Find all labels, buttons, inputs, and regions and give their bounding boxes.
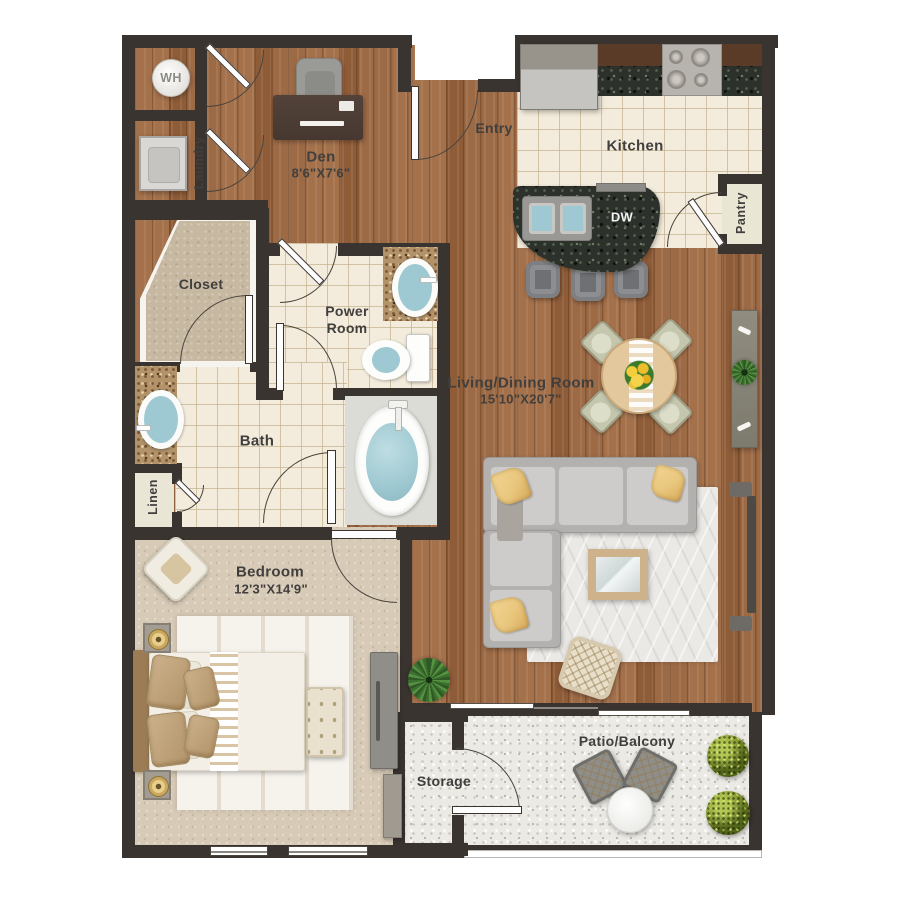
wall-entry-stub-left: [398, 35, 411, 92]
wall-closet-top: [133, 200, 268, 220]
refrigerator: [520, 44, 598, 110]
stove: [662, 44, 722, 96]
bed-headboard: [133, 650, 149, 772]
patio-label: Patio/Balcony: [579, 733, 675, 749]
bath-label: Bath: [240, 433, 275, 450]
bedroom-cabinet: [383, 774, 402, 838]
bed-blanket: [238, 652, 305, 771]
living-dining-label: Living/Dining Room: [447, 375, 594, 392]
sliding-door-track: [534, 707, 598, 709]
bed-folded-quilt: [210, 652, 238, 771]
bedroom-door[interactable]: [331, 530, 397, 539]
power-room-faucet: [420, 277, 437, 283]
patio-railing: [464, 850, 762, 858]
bedroom-window-left: [210, 846, 268, 856]
stove-burner: [667, 70, 686, 89]
den-desk-paper: [339, 101, 354, 111]
island-sink-unit: [522, 196, 592, 241]
wall-wh-laundry-divider: [133, 110, 197, 121]
bathtub-faucet-stem: [395, 407, 402, 431]
living-dining-dims: 15'10"X20'7": [480, 392, 561, 407]
table-flowers: [622, 360, 655, 393]
dishwasher-label: DW: [611, 210, 633, 225]
bedroom-chair-cushion: [159, 552, 193, 586]
entry-label: Entry: [475, 120, 512, 136]
power-room-label: Power Room: [318, 303, 376, 337]
toilet-water: [372, 347, 400, 373]
tv-bracket: [729, 616, 752, 631]
pantry-label: Pantry: [734, 192, 748, 234]
sink-basin-right: [560, 203, 586, 234]
wall-right: [762, 35, 775, 715]
closet-label: Closet: [179, 276, 224, 292]
patio-table: [607, 787, 653, 833]
nightstand-lamp: [148, 629, 169, 650]
bedroom-dresser: [370, 652, 398, 769]
bedroom-label: Bedroom: [236, 564, 304, 581]
island-tray: [596, 183, 646, 192]
washer-drum: [148, 147, 180, 183]
bath-sink: [138, 390, 184, 449]
bedroom-window-right: [288, 846, 368, 856]
patio-shrub: [707, 735, 749, 777]
power-room-sink: [392, 258, 438, 317]
wh-label: WH: [160, 71, 181, 85]
coffee-table: [588, 549, 648, 600]
sliding-door-pane-left[interactable]: [450, 703, 534, 709]
tv-screen: [747, 496, 756, 613]
sink-basin-left: [529, 203, 555, 234]
living-room-plant: [408, 658, 450, 702]
console-plant: [732, 360, 757, 385]
den-desk-keyboard: [300, 121, 344, 126]
wall-top-left: [122, 35, 412, 48]
stove-burner: [691, 48, 710, 67]
bed-bench: [306, 687, 344, 757]
kitchen-label: Kitchen: [606, 138, 663, 155]
closet-door[interactable]: [245, 295, 253, 364]
dresser-handle: [376, 681, 380, 741]
wall-storage-bottom: [393, 843, 468, 856]
wall-power-room-top-left: [262, 243, 280, 256]
laundry-label: Laundry: [192, 137, 206, 190]
patio-shrub: [706, 791, 750, 835]
bedroom-dims: 12'3"X14'9": [234, 582, 308, 597]
den-label: Den: [306, 149, 335, 166]
nightstand-lamp: [148, 776, 169, 797]
bath-door[interactable]: [327, 450, 336, 524]
power-bath-door[interactable]: [276, 323, 284, 391]
tv-bracket: [729, 482, 752, 497]
wall-storage-divider-top: [452, 712, 464, 750]
bath-faucet: [136, 425, 151, 431]
wall-bedroom-top: [133, 527, 332, 540]
sliding-door-pane-right[interactable]: [598, 710, 690, 716]
bar-stool: [526, 261, 560, 298]
bathtub-water: [366, 423, 418, 501]
den-desk: [273, 95, 363, 140]
bathtub: [355, 406, 429, 516]
linen-label: Linen: [146, 479, 160, 515]
entry-door[interactable]: [411, 86, 419, 160]
storage-door[interactable]: [452, 806, 522, 814]
sofa-cushion: [558, 466, 624, 526]
washer-icon: [139, 136, 187, 191]
stove-burner: [669, 50, 683, 64]
floor-plan: WH Laundry Den 8'6"X7'6" Entry Kitchen D…: [0, 0, 900, 900]
toilet-bowl: [362, 340, 410, 380]
stove-burner: [694, 73, 708, 87]
storage-label: Storage: [417, 773, 471, 789]
den-dims: 8'6"X7'6": [292, 166, 351, 181]
wall-patio-right: [749, 712, 762, 852]
